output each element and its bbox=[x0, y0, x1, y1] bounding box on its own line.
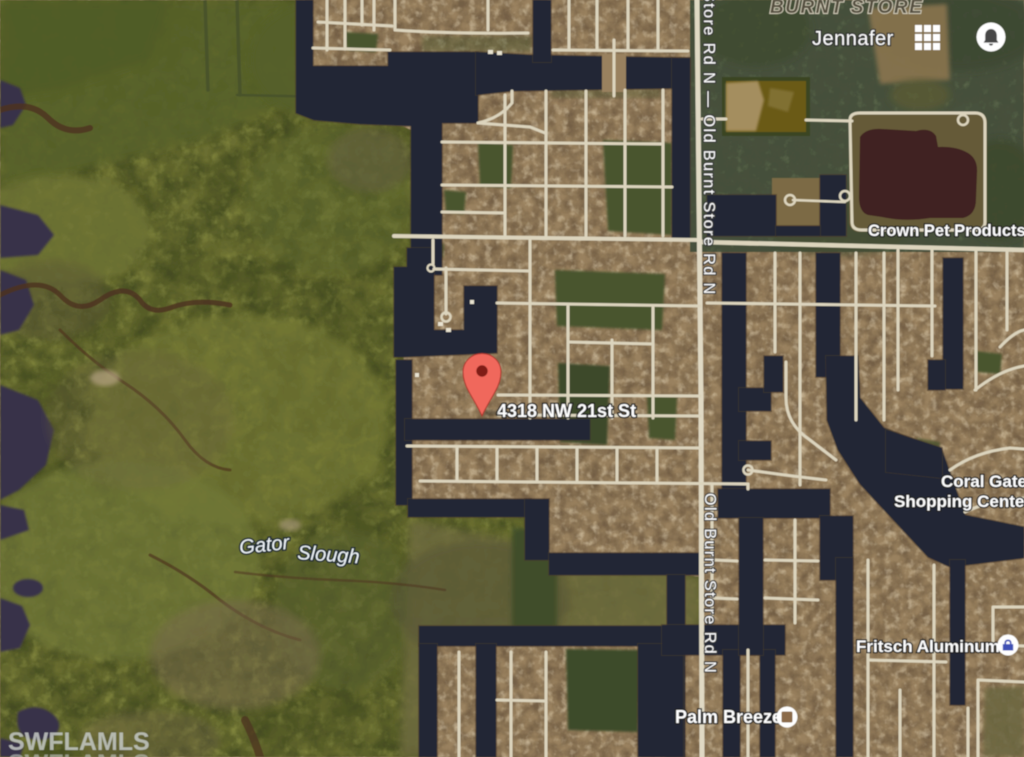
svg-text:Shopping Center: Shopping Center bbox=[894, 492, 1024, 511]
svg-text:Old Burnt Store Rd N: Old Burnt Store Rd N bbox=[701, 493, 718, 674]
svg-text:4318 NW 21st St: 4318 NW 21st St bbox=[497, 401, 636, 421]
svg-text:Slough: Slough bbox=[297, 542, 361, 568]
svg-text:SWFLAMLS: SWFLAMLS bbox=[8, 750, 150, 757]
svg-text:Coral Gate: Coral Gate bbox=[941, 472, 1024, 491]
svg-text:BURNT STORE: BURNT STORE bbox=[770, 0, 923, 18]
svg-text:Fritsch Aluminum: Fritsch Aluminum bbox=[856, 637, 1000, 656]
svg-text:Jennafer: Jennafer bbox=[812, 28, 894, 50]
svg-text:Old Burnt Store Rd N — Old Bur: Old Burnt Store Rd N — Old Burnt Store R… bbox=[700, 0, 717, 296]
svg-text:Palm Breeze: Palm Breeze bbox=[675, 707, 782, 727]
svg-text:Crown Pet Products: Crown Pet Products bbox=[868, 222, 1024, 240]
